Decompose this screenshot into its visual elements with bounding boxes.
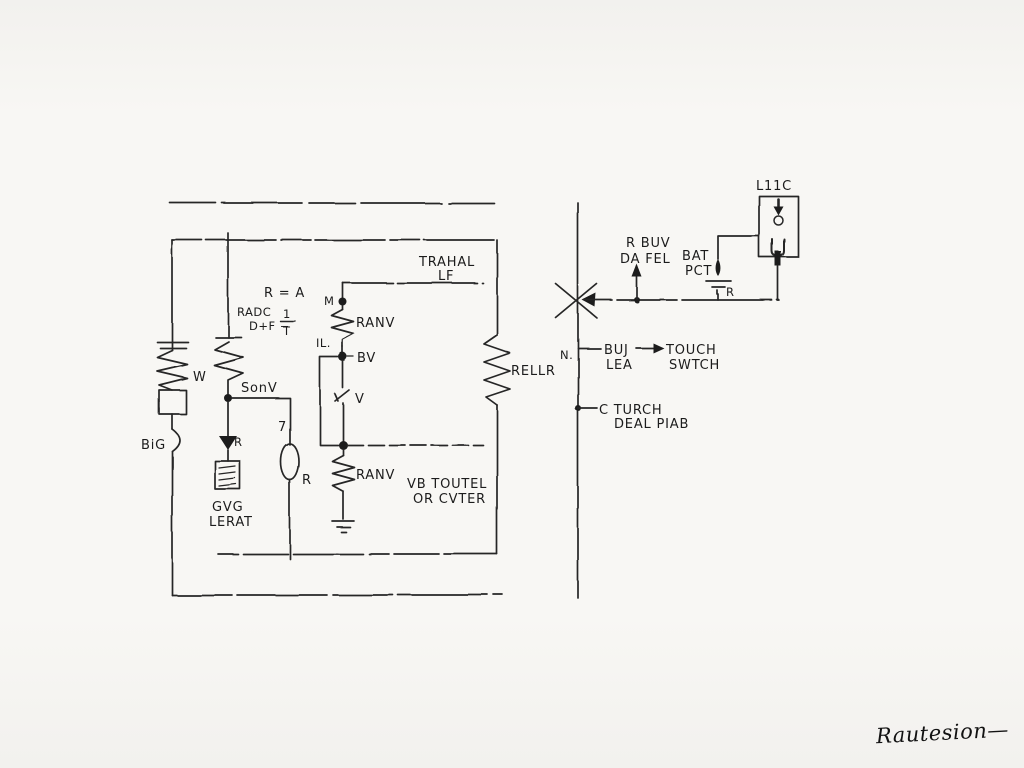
tranal-label: TRAHAL xyxy=(418,255,475,270)
source-value-label: 7 xyxy=(278,420,287,435)
tap-pedal-1: C TURCH xyxy=(599,403,663,418)
lamp-arrow-icon xyxy=(773,206,783,215)
supply-note-1: R BUV xyxy=(626,236,671,251)
ranv-top-label: RANV xyxy=(356,316,395,331)
fraction-denominator: T xyxy=(282,324,291,338)
rellr-label: RELLR xyxy=(511,364,556,379)
bv-label: BV xyxy=(357,351,376,366)
resistor-rellr-icon xyxy=(484,335,510,405)
tap-touch-to-1: TOUCH xyxy=(665,343,717,358)
lamp-label: L11C xyxy=(756,179,792,194)
lamp-bulb-icon xyxy=(774,216,783,225)
node-dot-m xyxy=(339,298,347,306)
formula-line2a: RADC xyxy=(237,305,271,319)
big-label: BiG xyxy=(141,438,166,453)
tap-touch-to-2: SWTCH xyxy=(669,358,720,373)
node-dot xyxy=(224,394,232,402)
varistor-slash-icon xyxy=(335,390,349,401)
battery-note-1: BAT xyxy=(682,249,709,264)
sonv-label: SonV xyxy=(241,381,278,396)
resistor-sonv-icon xyxy=(214,341,243,394)
meter-label-1: GVG xyxy=(212,500,243,515)
bus-n-label: N. xyxy=(560,348,573,362)
meter-hatch-icon xyxy=(219,466,236,486)
meter-label-2: LERAT xyxy=(209,515,253,530)
current-source-icon xyxy=(281,444,299,480)
battery-r-label: R xyxy=(726,285,735,299)
battery-branch-wire xyxy=(718,236,759,259)
resistor-ranv-bottom-icon xyxy=(332,455,354,491)
tap-touch-from-1: BUJ xyxy=(604,343,629,358)
tap-touch-from-2: LEA xyxy=(606,358,633,373)
supply-note-2: DA FEL xyxy=(620,252,671,267)
battery-note-2: PCT xyxy=(685,264,712,279)
fraction-numerator: 1 xyxy=(283,307,291,321)
v-label: V xyxy=(355,392,365,407)
schematic-labels: TRAHAL LF R = A RADC D+F − 1 T W BiG Son… xyxy=(141,179,1009,748)
tap-arrowhead-icon xyxy=(653,343,664,353)
tap-pedal-2: DEAL PIAB xyxy=(614,417,689,432)
schematic-canvas: TRAHAL LF R = A RADC D+F − 1 T W BiG Son… xyxy=(0,0,1024,768)
il-label: IL. xyxy=(316,336,331,350)
formula-line1: R = A xyxy=(264,286,305,301)
battery-drop-icon xyxy=(716,259,721,276)
resistor-w-icon xyxy=(157,350,187,390)
ground-icon xyxy=(332,521,354,532)
node-m-label: M xyxy=(324,294,334,308)
paper-sheet: TRAHAL LF R = A RADC D+F − 1 T W BiG Son… xyxy=(0,0,1024,768)
source-r-label: R xyxy=(302,473,312,488)
resistor-ranv-top-icon xyxy=(332,310,354,347)
diode-r-label: R xyxy=(234,435,243,449)
component-box-icon xyxy=(159,390,186,414)
lamp-stem-icon xyxy=(775,251,781,266)
ranv-bottom-label: RANV xyxy=(356,468,395,483)
lead-arc-icon xyxy=(172,429,180,451)
output-note-1: VB TOUTEL xyxy=(407,477,487,492)
output-note-2: OR CVTER xyxy=(413,492,486,507)
signature: Rautesion— xyxy=(874,717,1009,748)
tranal-label-2: LF xyxy=(438,269,454,284)
resistor-w-label: W xyxy=(193,370,207,385)
